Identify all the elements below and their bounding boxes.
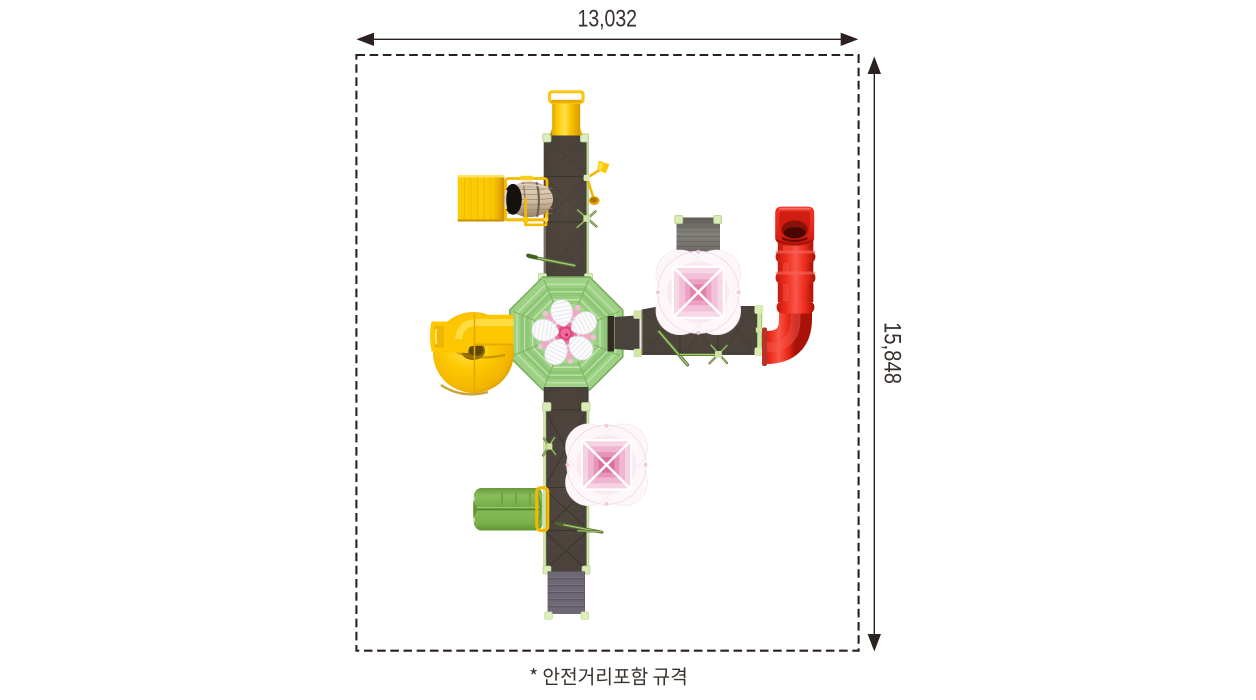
svg-text:13,032: 13,032: [578, 5, 638, 32]
svg-text:15,848: 15,848: [879, 322, 906, 384]
